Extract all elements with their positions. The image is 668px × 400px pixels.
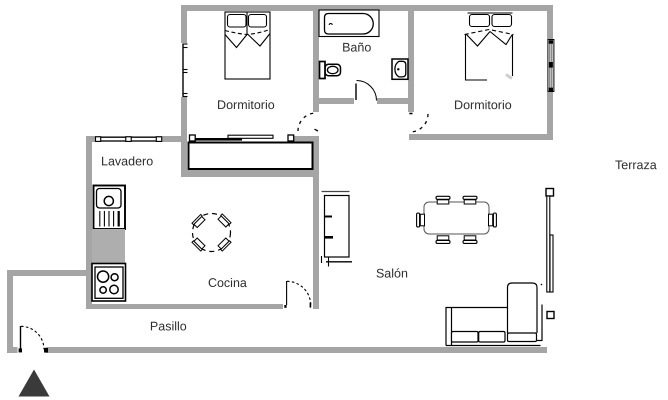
svg-text:Pasillo: Pasillo (150, 319, 187, 333)
svg-text:Cocina: Cocina (208, 276, 247, 290)
svg-text:Terraza: Terraza (615, 158, 657, 172)
svg-text:Baño: Baño (342, 41, 371, 55)
svg-text:Salón: Salón (376, 267, 408, 281)
svg-text:Dormitorio: Dormitorio (454, 98, 512, 112)
svg-text:Lavadero: Lavadero (101, 154, 153, 168)
svg-text:Dormitorio: Dormitorio (217, 98, 275, 112)
